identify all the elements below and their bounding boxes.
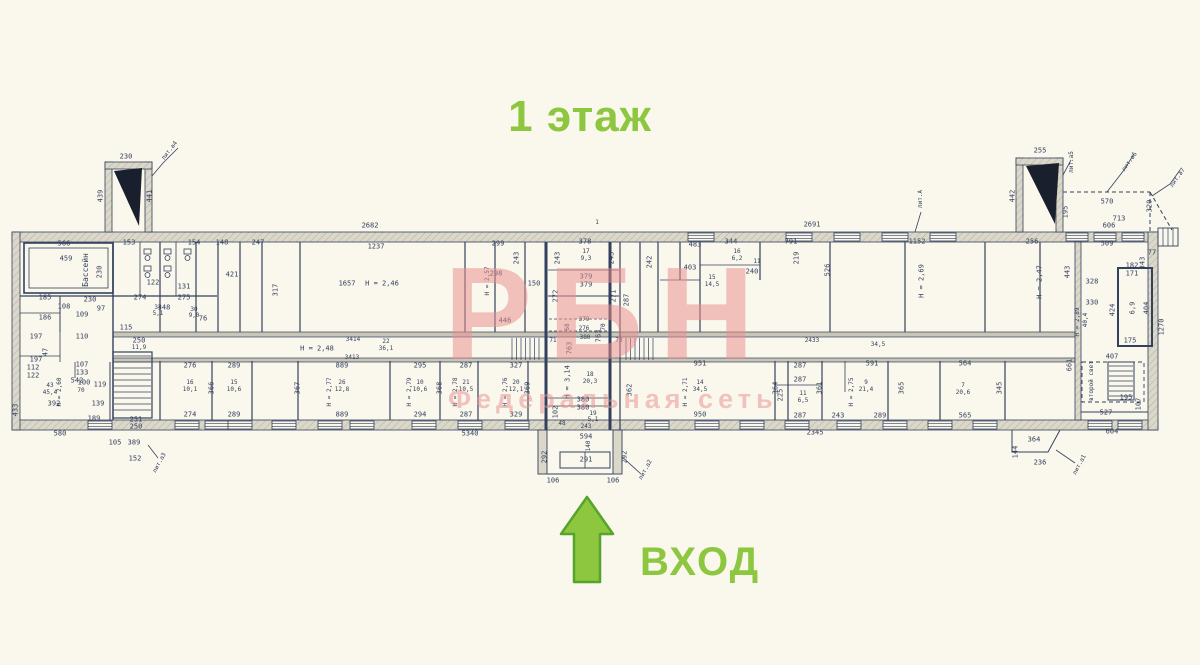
entrance-arrow-icon	[540, 490, 640, 590]
wc-fixtures-icon	[144, 249, 191, 278]
watermark-brand: РБН	[444, 248, 770, 380]
floor-title: 1 этаж	[460, 92, 700, 142]
entrance-porch	[538, 430, 622, 474]
watermark-subtitle: Федеральная сеть	[448, 384, 778, 415]
left-block	[20, 242, 217, 420]
stair-tower-right	[1016, 158, 1063, 232]
stair-tower-left	[105, 162, 152, 232]
pool-outline	[24, 243, 113, 293]
stair-wedge-icon	[114, 168, 142, 226]
annex-dashed	[1063, 192, 1172, 232]
floor-plan-page: 230лит.а4439441268212691255442195лит.а5л…	[0, 0, 1200, 665]
porch-right	[1012, 430, 1060, 452]
stair-wedge-icon	[1026, 163, 1059, 224]
entrance-label: ВХОД	[640, 540, 760, 585]
right-block	[1075, 228, 1178, 420]
